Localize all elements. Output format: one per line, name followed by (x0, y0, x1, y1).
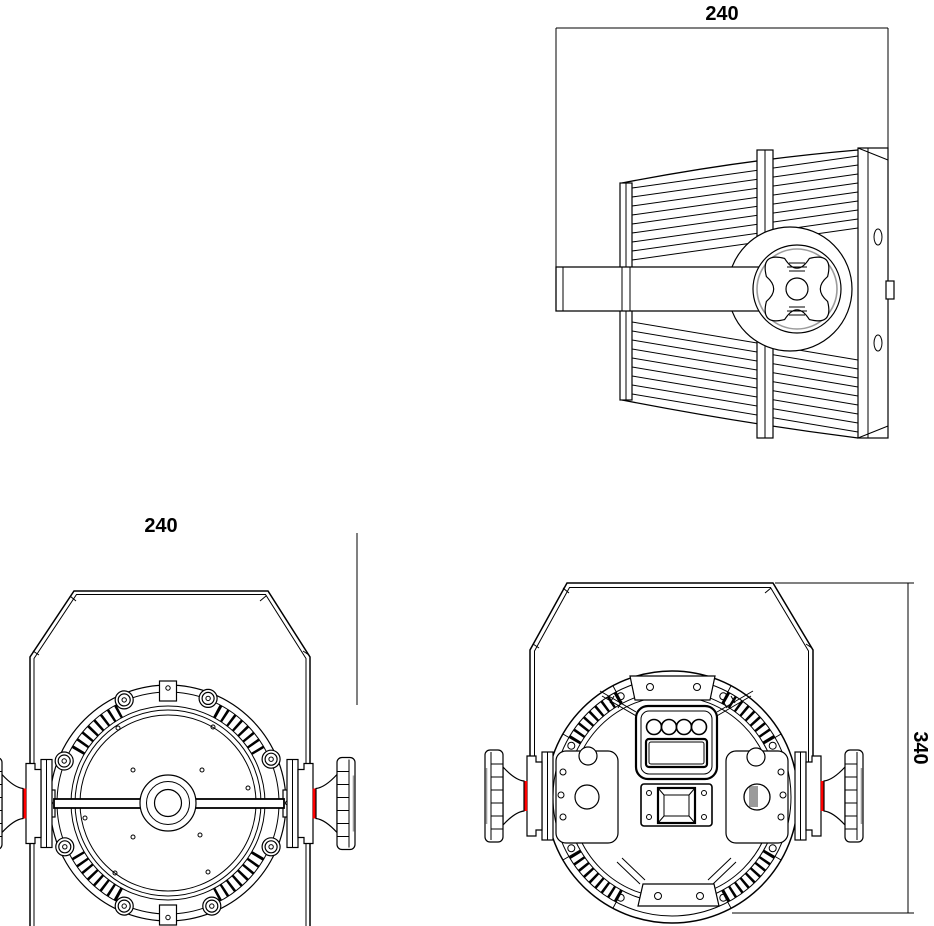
display-module (636, 706, 717, 779)
rear-plate (858, 148, 894, 438)
dimension-top-width: 240 (556, 3, 888, 267)
clamp-knob-rear-right (795, 750, 863, 842)
clamp-knob-rear-left (485, 750, 553, 842)
technical-drawing: 240 (0, 0, 934, 926)
dimension-label-rear-height: 340 (909, 731, 931, 764)
center-hub (140, 775, 196, 831)
display-window (646, 739, 707, 767)
power-connector (641, 784, 712, 826)
dimension-front-width: 240 (144, 515, 357, 705)
rear-view: 340 (485, 583, 931, 923)
connector-panel-left (556, 747, 618, 843)
dimension-label-top-width: 240 (705, 3, 738, 25)
clamp-knob-front-left (0, 758, 52, 850)
yoke-arm (556, 267, 761, 311)
rear-top-plate (630, 676, 715, 700)
rear-bottom-plate (638, 884, 719, 906)
tilt-hand-knob (753, 245, 841, 333)
dimension-label-front-width: 240 (144, 515, 177, 537)
connector-panel-right (726, 748, 788, 843)
xlr-connector-left (575, 785, 599, 809)
top-view: 240 (556, 3, 894, 438)
clamp-knob-front-right (287, 758, 355, 850)
front-view: 240 (0, 515, 357, 926)
